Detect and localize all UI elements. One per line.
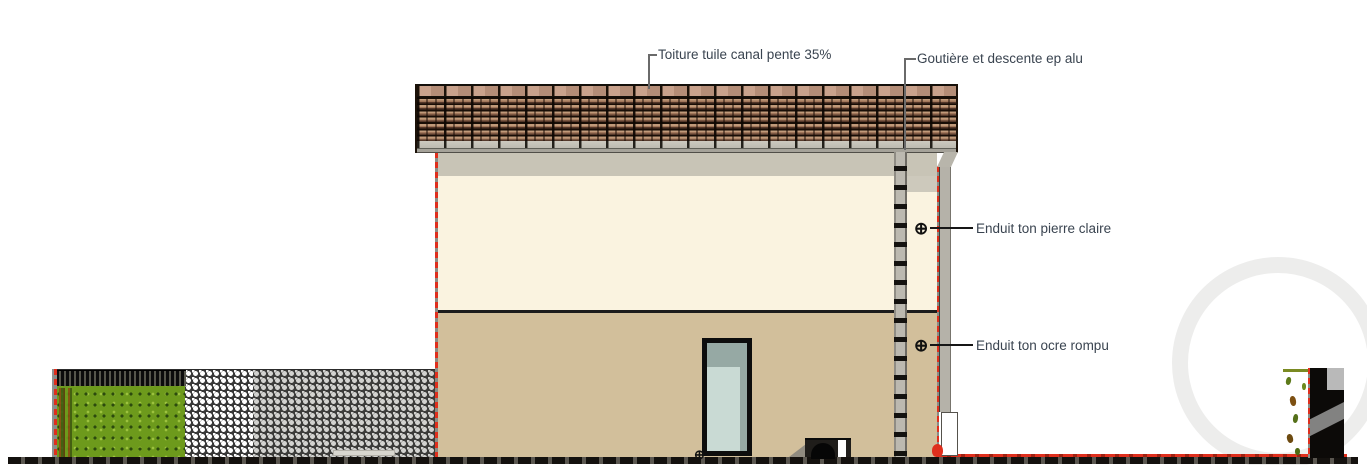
target-marker-icon: ⊕ xyxy=(914,338,928,353)
leader-line-lower-wall xyxy=(930,344,973,346)
wall-ground-floor xyxy=(437,312,937,457)
annotation-lower-wall: Enduit ton ocre rompu xyxy=(976,338,1109,353)
downspout-pipe xyxy=(894,152,907,457)
floor-separation-line xyxy=(437,310,937,313)
roof-fascia xyxy=(417,141,956,148)
eave-shadow xyxy=(437,152,937,176)
corner-white-box xyxy=(941,412,958,456)
vent-shadow xyxy=(789,444,806,457)
leader-line-upper-wall xyxy=(930,227,973,229)
ground-line xyxy=(8,457,1358,464)
fence-mesh-shaded xyxy=(253,370,435,457)
leader-line-roof xyxy=(648,54,650,89)
vegetation-sprig xyxy=(1302,383,1306,390)
vent-box xyxy=(805,438,851,457)
corner-return-wall xyxy=(939,166,951,412)
hedge-trunks xyxy=(59,388,72,457)
window xyxy=(702,338,752,456)
neighbor-cut-line xyxy=(1308,368,1311,458)
leader-line-gutter xyxy=(904,58,906,150)
wall-left-cut-line xyxy=(435,152,438,457)
wall-upper-floor xyxy=(437,152,937,312)
fence-mesh xyxy=(185,370,253,457)
property-cut-line xyxy=(54,369,57,457)
corner-red-mark xyxy=(932,444,943,457)
leader-line-gutter-tick xyxy=(904,58,916,60)
window-glass-reflection-right xyxy=(740,343,747,451)
roof xyxy=(415,84,958,153)
annotation-roof: Toiture tuile canal pente 35% xyxy=(658,47,831,62)
gutter xyxy=(417,148,956,153)
watermark-arc xyxy=(1310,394,1344,436)
roof-ridge-tiles xyxy=(417,84,956,97)
target-marker-icon: ⊕ xyxy=(694,447,705,462)
roof-tile-field xyxy=(417,97,956,141)
corner-shadow xyxy=(903,176,937,192)
window-glass xyxy=(707,343,747,451)
hedge-top-band xyxy=(56,370,186,386)
neighbor-wall-cap xyxy=(1327,368,1344,390)
elevation-drawing: ⊕ Toiture tuile canal pente 35% Goutière… xyxy=(0,0,1367,465)
annotation-upper-wall: Enduit ton pierre claire xyxy=(976,221,1111,236)
vent-opening xyxy=(811,443,835,459)
leader-line-roof-tick xyxy=(648,54,657,56)
curb-strip xyxy=(333,450,395,456)
eave-corner-right xyxy=(937,152,958,167)
vent-stripe xyxy=(838,440,846,457)
target-marker-icon: ⊕ xyxy=(914,221,928,236)
neighbor-wall-section xyxy=(1310,368,1344,458)
annotation-gutter: Goutière et descente ep alu xyxy=(917,51,1083,66)
vegetation-sprig xyxy=(1295,448,1300,455)
